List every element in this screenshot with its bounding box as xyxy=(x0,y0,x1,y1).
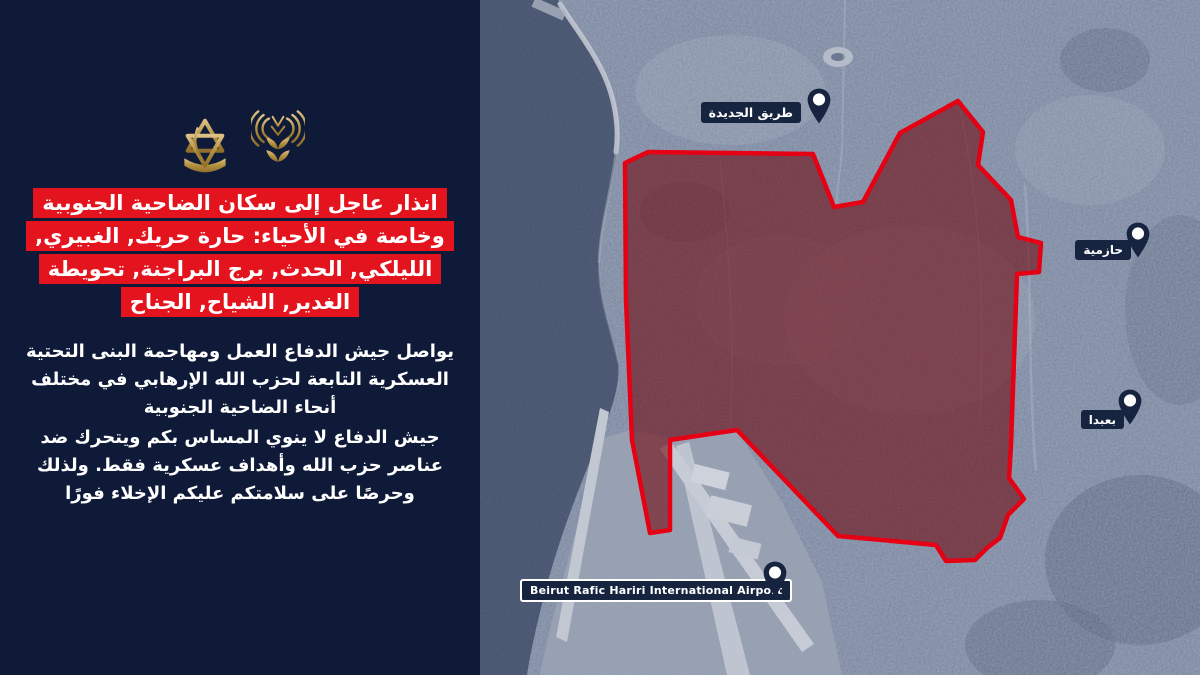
location-label-text: بعبدا xyxy=(1089,413,1116,427)
headline-line-3: الليلكي, الحدث, برج البراجنة, تحويطة xyxy=(39,254,442,284)
warning-paragraph-1: يواصل جيش الدفاع العمل ومهاجمة البنى الت… xyxy=(18,338,462,422)
idf-insignia-icon xyxy=(175,116,235,178)
infographic: انذار عاجل إلى سكان الضاحية الجنوبية وخا… xyxy=(0,0,1200,675)
location-label-text: Beirut Rafic Hariri International Airpor… xyxy=(530,584,782,597)
map-pin-hazmieh-icon xyxy=(1125,221,1151,259)
warning-paragraph-2: جيش الدفاع لا ينوي المساس بكم ويتحرك ضد … xyxy=(18,424,462,508)
logo-row xyxy=(0,100,480,178)
map-pin-baabda-icon xyxy=(1117,388,1143,426)
headline-line-1: انذار عاجل إلى سكان الضاحية الجنوبية xyxy=(33,188,446,218)
location-label-text: طريق الجديدة xyxy=(709,105,793,120)
map-pin-tariq-el-jdideh-icon xyxy=(806,87,832,125)
location-label-tariq-el-jdideh: طريق الجديدة xyxy=(701,102,801,123)
map-satellite: طريق الجديدة حازمية بعبدا Beirut Rafic H… xyxy=(480,0,1200,675)
map-pin-airport-icon xyxy=(762,560,788,598)
location-label-airport: Beirut Rafic Hariri International Airpor… xyxy=(520,579,792,602)
headline-line-4: الغدير, الشياح, الجناح xyxy=(121,287,359,317)
location-label-text: حازمية xyxy=(1083,243,1123,257)
map-canvas xyxy=(480,0,1200,675)
location-label-hazmieh: حازمية xyxy=(1075,240,1131,260)
announcement-panel: انذار عاجل إلى سكان الضاحية الجنوبية وخا… xyxy=(0,0,480,675)
headline-line-2: وخاصة في الأحياء: حارة حريك, الغبيري, xyxy=(26,221,454,251)
warning-headline: انذار عاجل إلى سكان الضاحية الجنوبية وخا… xyxy=(0,188,480,320)
broadcast-antenna-icon xyxy=(251,106,305,178)
